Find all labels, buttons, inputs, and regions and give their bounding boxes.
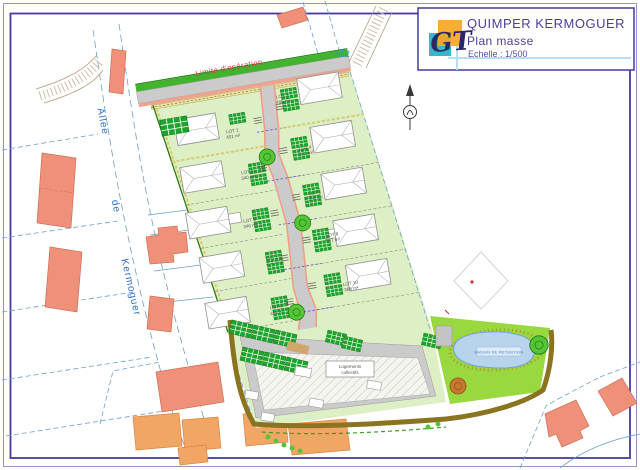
existing-building (545, 400, 589, 447)
existing-building (156, 362, 224, 412)
site-plan-canvas: LOT 1401 m² LOT 2486 m² LOT 3340 m² LOT … (0, 0, 640, 470)
tree-icon (450, 378, 466, 394)
existing-building (147, 296, 174, 332)
platform (436, 326, 452, 346)
existing-building (277, 7, 308, 28)
pond-label: BASSIN DE RETENTION (475, 351, 524, 355)
scale-label: Echelle : 1/500 (468, 49, 528, 59)
project-title: QUIMPER KERMOGUER (467, 16, 625, 31)
existing-building (133, 413, 182, 450)
existing-building (45, 247, 82, 312)
existing-building (109, 49, 126, 94)
existing-building (178, 445, 208, 465)
building-label: collectifs (341, 370, 359, 375)
street-label: de (109, 199, 122, 214)
title-block: GT QUIMPER KERMOGUER Plan masse Echelle … (418, 8, 634, 70)
street-label: Allée (94, 107, 110, 136)
plan-sheet: LOT 1401 m² LOT 2486 m² LOT 3340 m² LOT … (0, 0, 640, 470)
street-label: Kermoguer (119, 258, 143, 317)
parcel-number: 452 (334, 49, 350, 60)
tree-icon (530, 336, 548, 354)
north-arrow-icon (404, 84, 417, 130)
existing-building (146, 226, 188, 264)
drawing-title: Plan masse (467, 34, 534, 48)
building-label: Logements (339, 364, 362, 369)
existing-building (598, 378, 637, 416)
